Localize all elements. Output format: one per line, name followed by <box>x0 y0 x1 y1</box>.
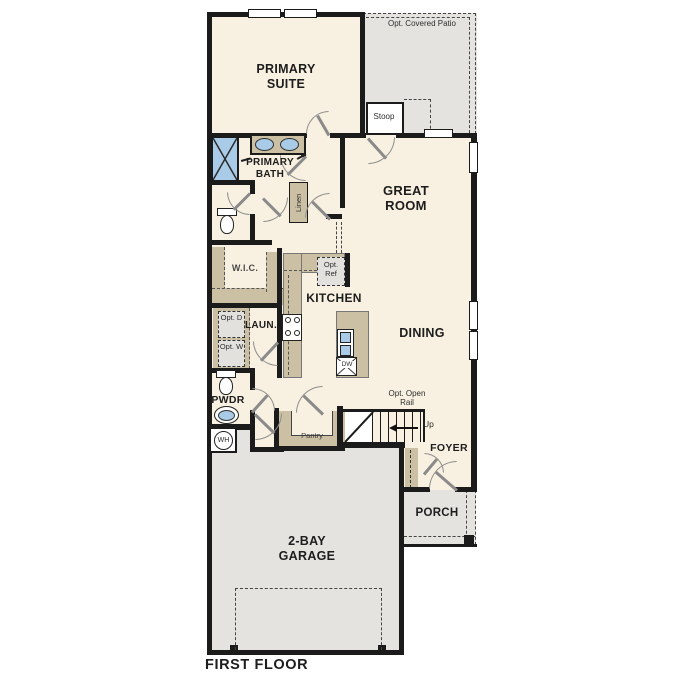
patio-inner-dashed-right <box>469 17 470 133</box>
wall <box>250 214 255 242</box>
room-label-powder: PWDR <box>210 394 246 406</box>
room-label-primary-bath: PRIMARY BATH <box>241 157 299 181</box>
powder-sink-bowl <box>218 410 235 421</box>
wall <box>404 487 430 492</box>
wall <box>337 442 405 448</box>
room-label-laundry: LAUN. <box>244 320 278 332</box>
plan-title: FIRST FLOOR <box>205 657 375 674</box>
stair-tread <box>380 412 381 442</box>
room-label-kitchen: KITCHEN <box>305 291 363 305</box>
wall <box>455 487 477 492</box>
optional-washer-label: Opt. W <box>219 343 244 352</box>
toilet-bowl <box>220 215 234 234</box>
wall <box>360 12 365 138</box>
island-sink-bowl <box>340 332 351 343</box>
porch-post <box>464 535 474 544</box>
window <box>284 9 317 18</box>
wall <box>207 240 272 245</box>
wall <box>345 253 350 287</box>
stairs-up-label: Up <box>423 420 441 430</box>
room-label-foyer: FOYER <box>428 442 470 454</box>
island-sink-bowl <box>340 345 351 356</box>
open-rail-label: Opt. Open Rail <box>384 389 430 407</box>
room-label-great-room: GREAT ROOM <box>374 183 438 214</box>
room-label-wic: W.I.C. <box>225 263 265 274</box>
stove-burner <box>294 317 300 323</box>
stair-tread <box>372 412 373 442</box>
wall <box>250 180 255 194</box>
powder-toilet-bowl <box>219 377 233 395</box>
stove-burner <box>285 317 291 323</box>
optional-dryer-label: Opt. D <box>219 314 244 323</box>
wall <box>340 133 345 208</box>
shower <box>211 136 239 182</box>
patio-inner-dashed-top <box>366 17 470 18</box>
shower-x-icon <box>213 138 237 180</box>
cased-opening-dash <box>336 222 337 253</box>
garage-door-dashed <box>235 588 382 650</box>
stair-up-arrow-line <box>396 427 418 429</box>
window <box>469 301 478 330</box>
window <box>424 129 453 138</box>
wall <box>337 406 343 446</box>
room-label-stoop: Stoop <box>369 112 399 121</box>
room-label-pantry: Pantry <box>295 432 329 441</box>
porch-slab-edge <box>404 544 477 547</box>
dishwasher-label: DW <box>340 361 354 368</box>
window <box>469 331 478 360</box>
room-label-porch: PORCH <box>414 507 460 521</box>
room-label-garage: 2-BAY GARAGE <box>277 534 337 564</box>
wall <box>250 368 255 390</box>
window <box>248 9 281 18</box>
floor-plan: Linen Opt. Ref Opt. D Opt. W DW WH <box>0 0 687 687</box>
wall <box>274 446 345 451</box>
understair-closet <box>405 448 418 490</box>
wall <box>360 133 366 138</box>
stove-burner <box>285 330 291 336</box>
water-heater-label: WH <box>214 431 233 450</box>
vanity-sink <box>255 138 274 151</box>
window <box>469 142 478 173</box>
wall <box>207 12 212 655</box>
stove-burner <box>294 330 300 336</box>
vanity-sink <box>280 138 299 151</box>
room-label-dining: DINING <box>397 326 447 341</box>
understair-closet-door-dash <box>410 450 411 488</box>
cased-opening-dash <box>341 222 342 253</box>
optional-refrigerator-label: Opt. Ref <box>318 261 344 278</box>
room-label-primary-suite: PRIMARY SUITE <box>246 62 326 92</box>
stair-tread <box>420 412 421 442</box>
wall <box>207 303 277 308</box>
room-label-covered-patio: Opt. Covered Patio <box>379 19 465 28</box>
stair-up-arrowhead-icon <box>389 424 397 432</box>
wall <box>330 133 360 138</box>
wall <box>399 442 404 655</box>
